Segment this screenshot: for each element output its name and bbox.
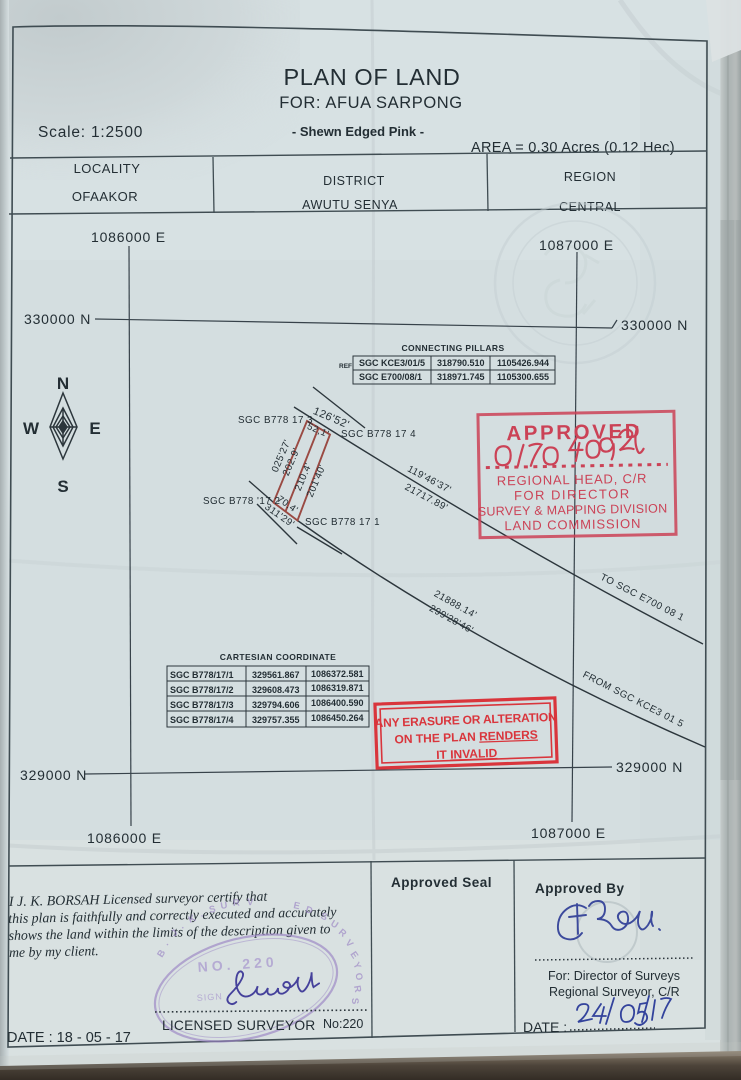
svg-text:1086372.581: 1086372.581 xyxy=(311,669,364,679)
svg-text:DATE : 18 - 05 - 17: DATE : 18 - 05 - 17 xyxy=(7,1030,131,1046)
svg-text:329000 N: 329000 N xyxy=(616,759,683,775)
svg-text:329757.355: 329757.355 xyxy=(252,715,300,725)
svg-text:S: S xyxy=(57,477,68,496)
svg-text:CARTESIAN COORDINATE: CARTESIAN COORDINATE xyxy=(220,652,336,662)
svg-text:318971.745: 318971.745 xyxy=(437,372,485,382)
svg-text:1086450.264: 1086450.264 xyxy=(311,713,364,723)
svg-text:OFAAKOR: OFAAKOR xyxy=(72,189,138,204)
svg-text:IT INVALID: IT INVALID xyxy=(436,746,498,762)
svg-text:No:220: No:220 xyxy=(323,1017,363,1031)
svg-text:SGC E700/08/1: SGC E700/08/1 xyxy=(359,372,422,382)
svg-text:SGC B778 17 1: SGC B778 17 1 xyxy=(305,517,380,528)
svg-text:SGC B778/17/3: SGC B778/17/3 xyxy=(170,700,234,710)
svg-text:REGION: REGION xyxy=(564,170,616,184)
svg-text:1086000 E: 1086000 E xyxy=(91,229,166,245)
svg-text:Approved By: Approved By xyxy=(535,881,625,896)
svg-text:Regional Surveyor, C/R: Regional Surveyor, C/R xyxy=(549,985,680,999)
svg-text:SGC KCE3/01/5: SGC KCE3/01/5 xyxy=(359,358,425,368)
svg-text:me by my client.: me by my client. xyxy=(9,943,99,960)
svg-text:FOR: AFUA SARPONG: FOR: AFUA SARPONG xyxy=(279,94,462,112)
svg-text:LOCALITY: LOCALITY xyxy=(74,161,141,176)
svg-text:1105300.655: 1105300.655 xyxy=(497,372,549,382)
svg-text:330000 N: 330000 N xyxy=(621,317,688,333)
svg-text:For: Director of Surveys: For: Director of Surveys xyxy=(548,969,680,983)
svg-text:1087000 E: 1087000 E xyxy=(531,825,606,841)
svg-text:SGC B778/17/1: SGC B778/17/1 xyxy=(170,670,234,680)
svg-text:1087000 E: 1087000 E xyxy=(539,237,614,253)
svg-text:W: W xyxy=(23,419,40,438)
svg-text:1086400.590: 1086400.590 xyxy=(311,698,364,708)
svg-text:DISTRICT: DISTRICT xyxy=(323,174,385,188)
svg-text:330000 N: 330000 N xyxy=(24,311,91,327)
svg-text:329000 N: 329000 N xyxy=(20,767,87,783)
svg-text:LICENSED SURVEYOR: LICENSED SURVEYOR xyxy=(162,1018,315,1033)
svg-text:SGC B778/17/2: SGC B778/17/2 xyxy=(170,685,234,695)
svg-text:329794.606: 329794.606 xyxy=(252,700,300,710)
svg-text:318790.510: 318790.510 xyxy=(437,358,485,368)
svg-text:SIGN: SIGN xyxy=(196,991,223,1003)
svg-text:329608.473: 329608.473 xyxy=(252,685,300,695)
svg-text:DATE :: DATE : xyxy=(523,1019,567,1035)
svg-text:AWUTU SENYA: AWUTU SENYA xyxy=(302,198,398,212)
svg-text:SGC B778 17 4: SGC B778 17 4 xyxy=(341,429,416,440)
svg-text:- Shewn Edged Pink -: - Shewn Edged Pink - xyxy=(292,124,424,139)
svg-text:R: R xyxy=(232,898,240,909)
svg-text:Scale: 1:2500: Scale: 1:2500 xyxy=(38,124,143,141)
svg-text:E: E xyxy=(89,419,100,438)
svg-text:SGC B778 17 3: SGC B778 17 3 xyxy=(238,415,313,426)
svg-text:1086000 E: 1086000 E xyxy=(87,830,162,846)
svg-text:S: S xyxy=(349,998,360,1005)
svg-text:1086319.871: 1086319.871 xyxy=(311,683,364,693)
svg-text:CONNECTING PILLARS: CONNECTING PILLARS xyxy=(401,343,504,353)
svg-text:PLAN OF LAND: PLAN OF LAND xyxy=(284,64,461,90)
svg-text:LAND COMMISSION: LAND COMMISSION xyxy=(504,516,641,533)
svg-text:V: V xyxy=(247,897,254,908)
svg-text:N: N xyxy=(57,374,69,393)
svg-text:Approved Seal: Approved Seal xyxy=(391,875,492,890)
svg-text:SGC B778/17/4: SGC B778/17/4 xyxy=(170,715,234,725)
svg-text:FOR DIRECTOR: FOR DIRECTOR xyxy=(514,486,631,503)
svg-text:REF: REF xyxy=(339,363,352,370)
svg-text:1105426.944: 1105426.944 xyxy=(497,358,549,368)
svg-text:329561.867: 329561.867 xyxy=(252,670,300,680)
